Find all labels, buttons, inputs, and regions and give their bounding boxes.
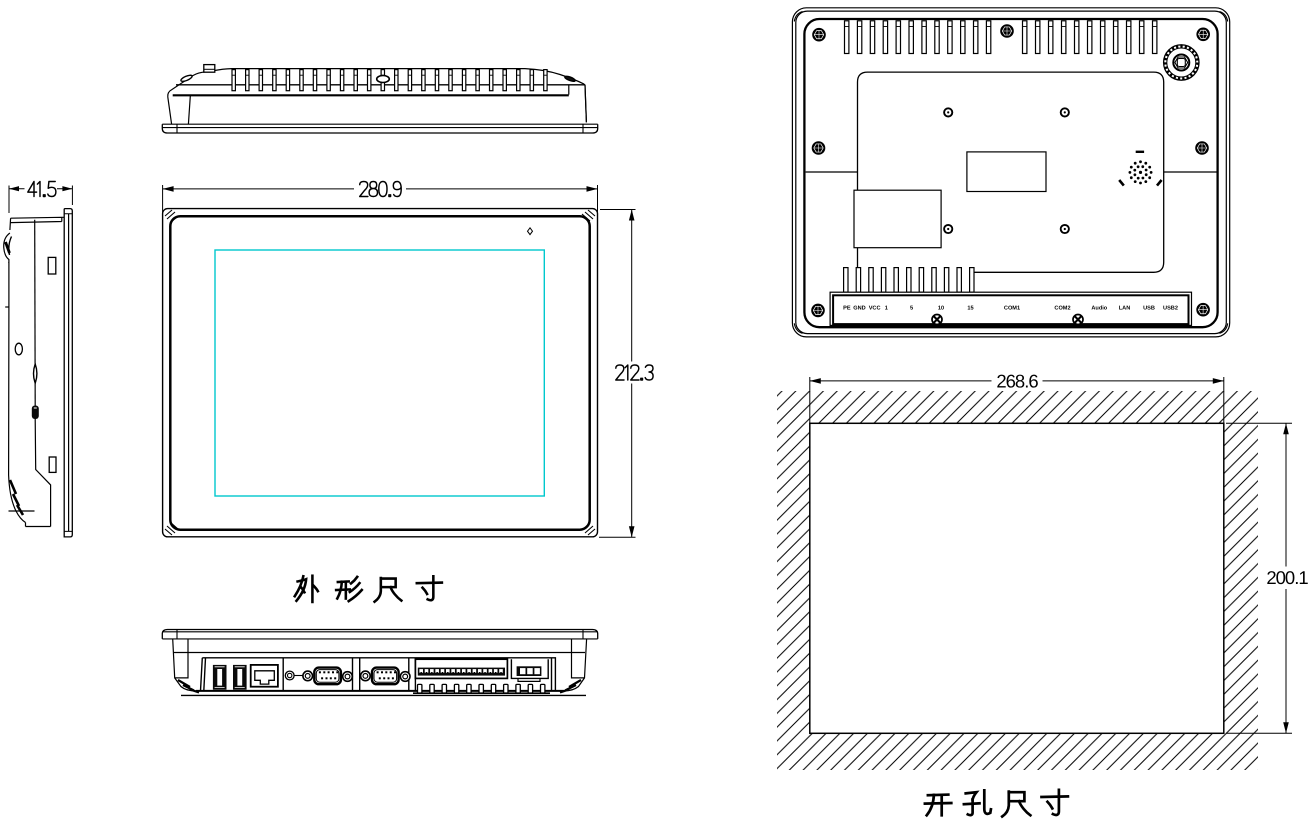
svg-text:200.1: 200.1 [1266,567,1308,588]
svg-text:15: 15 [967,305,973,311]
svg-text:LAN: LAN [1119,305,1131,311]
svg-text:USB: USB [1143,305,1155,311]
svg-text:PE: PE [843,305,851,311]
svg-text:GND: GND [853,305,865,311]
svg-text:1: 1 [885,305,888,311]
svg-text:5: 5 [910,305,913,311]
svg-text:COM1: COM1 [1004,305,1020,311]
svg-text:USB2: USB2 [1163,305,1178,311]
svg-text:10: 10 [938,305,944,311]
svg-text:COM2: COM2 [1054,305,1070,311]
svg-text:Audio: Audio [1091,304,1107,311]
svg-text:268.6: 268.6 [996,370,1038,391]
svg-text:VCC: VCC [869,305,881,311]
